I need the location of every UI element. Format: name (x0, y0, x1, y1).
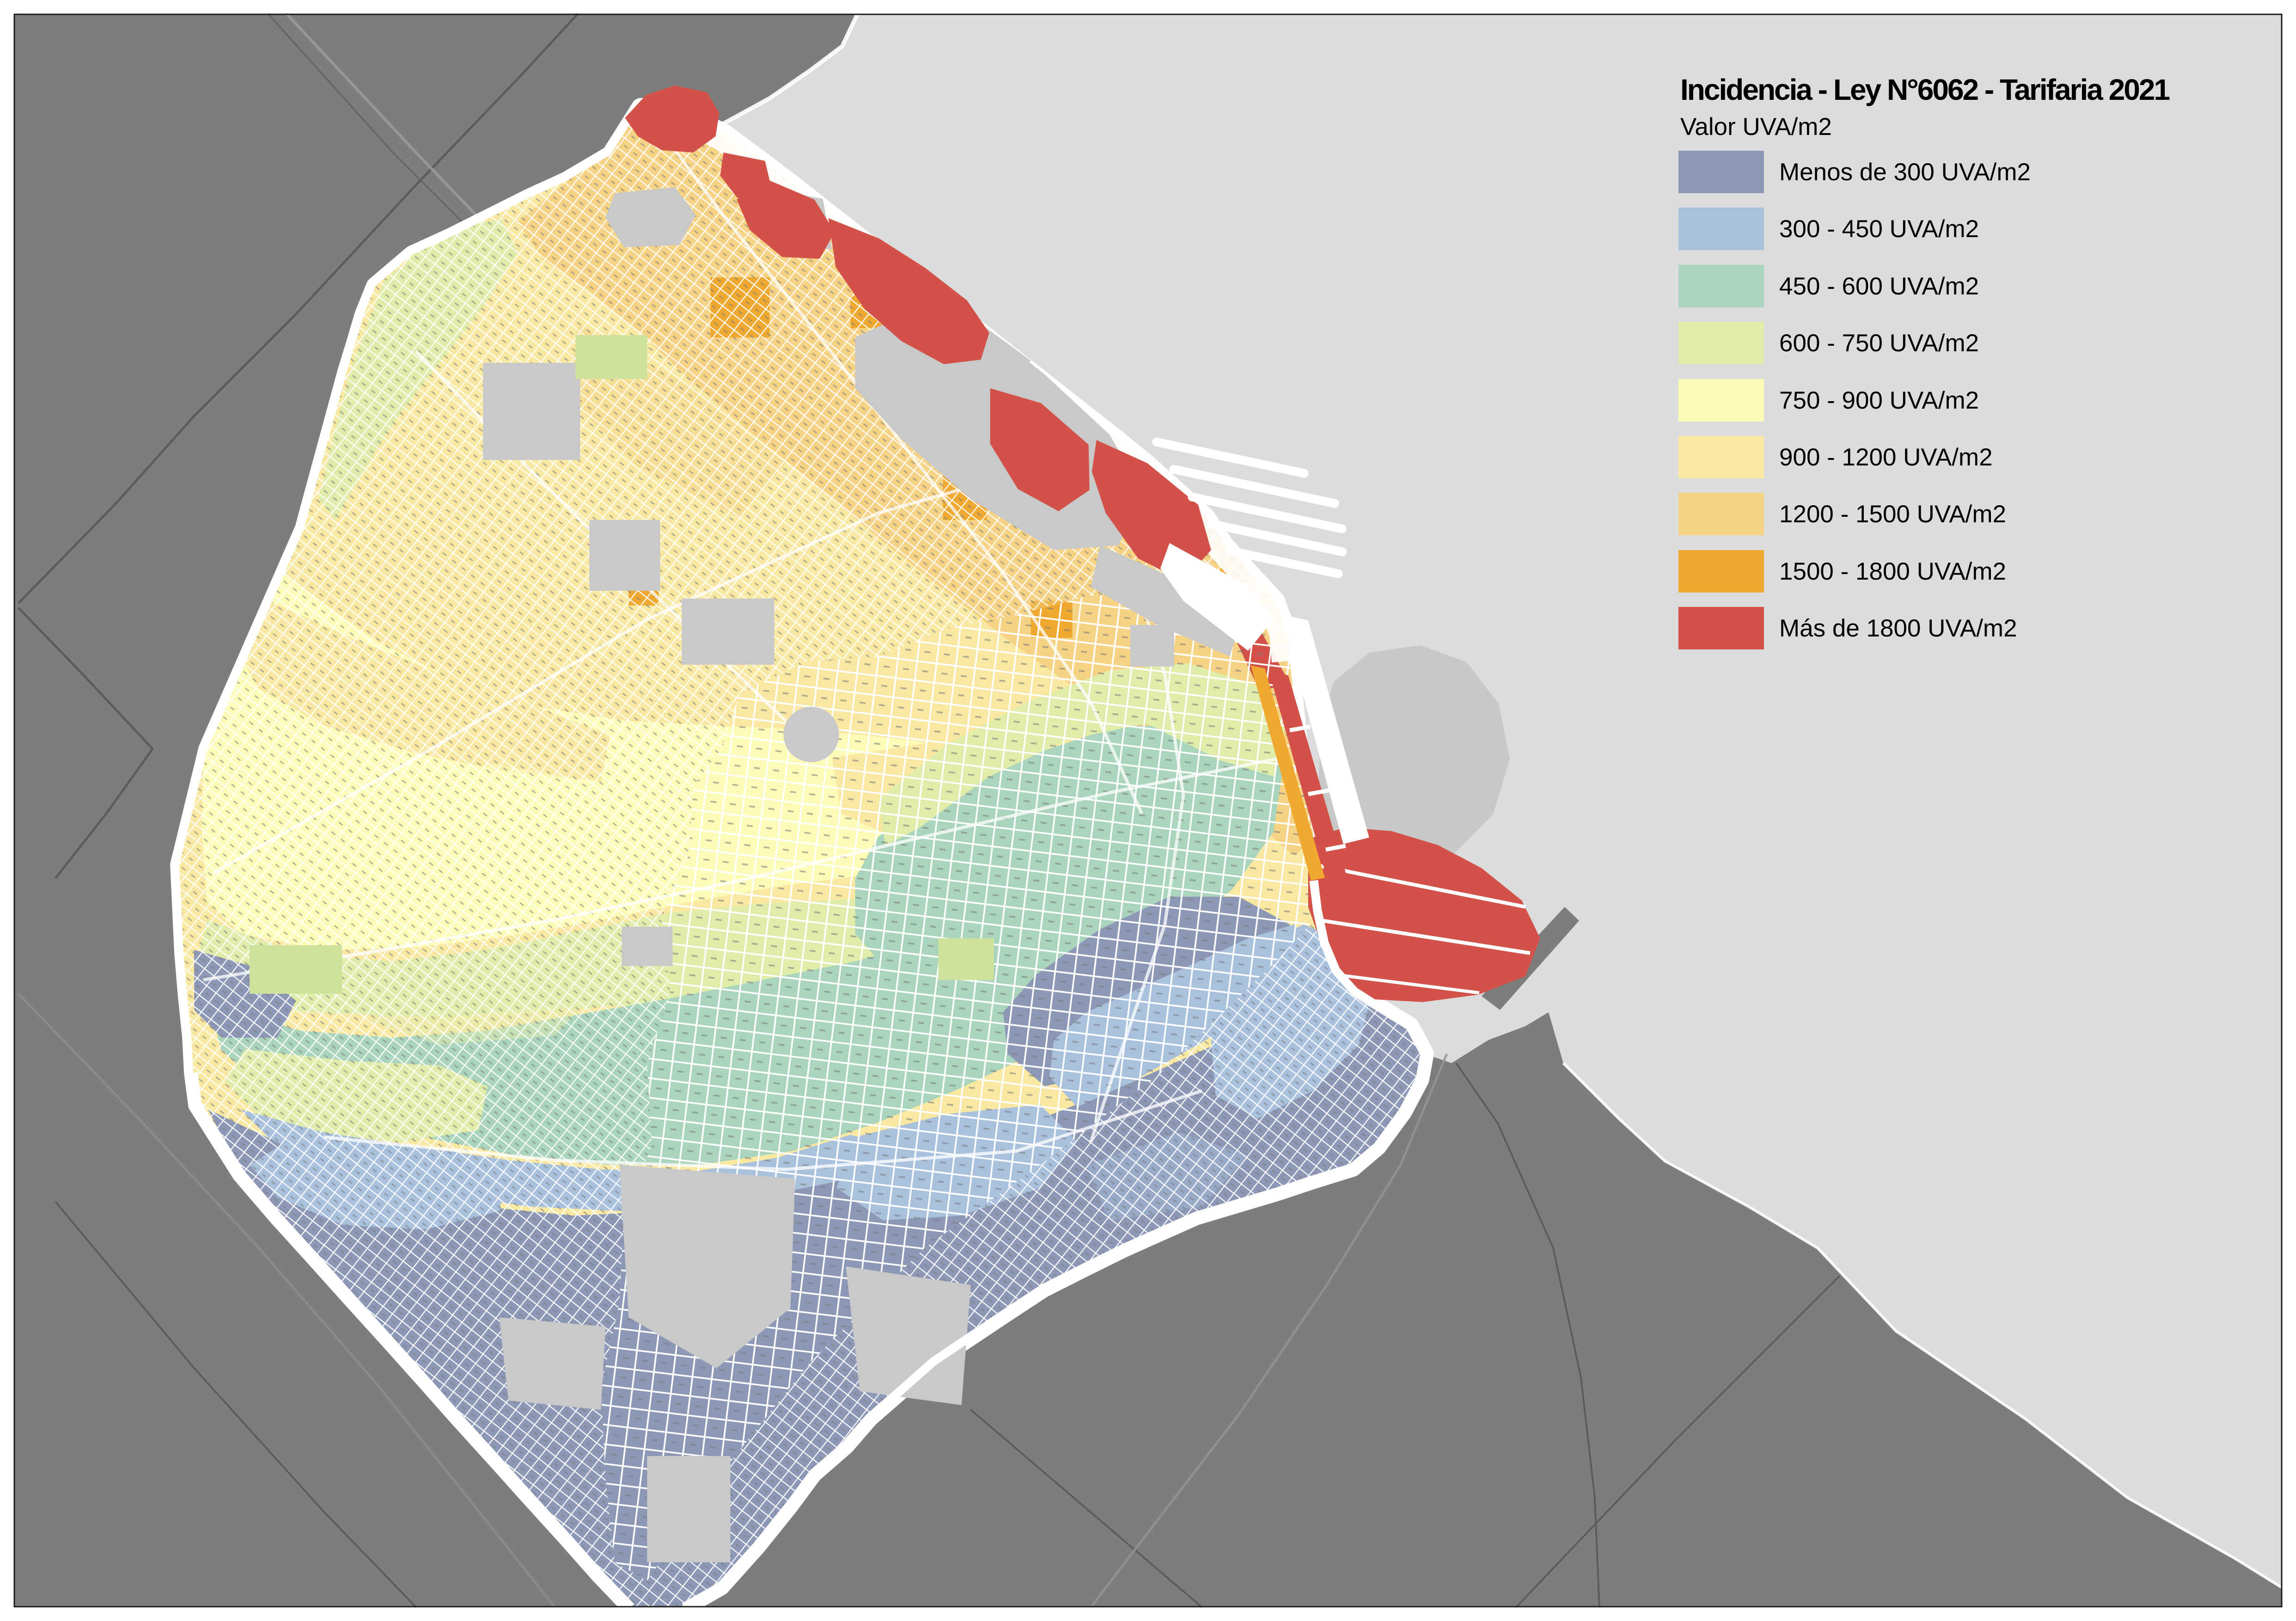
svg-text:Incidencia - Ley N°6062 - Tari: Incidencia - Ley N°6062 - Tarifaria 2021 (1680, 73, 2169, 106)
svg-text:1200 - 1500 UVA/m2: 1200 - 1500 UVA/m2 (1779, 501, 2006, 528)
svg-text:300 - 450 UVA/m2: 300 - 450 UVA/m2 (1779, 215, 1979, 243)
svg-text:900 - 1200 UVA/m2: 900 - 1200 UVA/m2 (1779, 444, 1993, 471)
svg-text:600 - 750 UVA/m2: 600 - 750 UVA/m2 (1779, 330, 1979, 357)
svg-text:1500 - 1800 UVA/m2: 1500 - 1800 UVA/m2 (1779, 558, 2006, 585)
svg-text:450 - 600 UVA/m2: 450 - 600 UVA/m2 (1779, 273, 1979, 300)
svg-text:750 - 900 UVA/m2: 750 - 900 UVA/m2 (1779, 387, 1979, 414)
svg-text:Valor UVA/m2: Valor UVA/m2 (1680, 113, 1832, 141)
svg-text:Menos de 300 UVA/m2: Menos de 300 UVA/m2 (1779, 159, 2031, 186)
svg-text:Más de 1800 UVA/m2: Más de 1800 UVA/m2 (1779, 615, 2017, 642)
